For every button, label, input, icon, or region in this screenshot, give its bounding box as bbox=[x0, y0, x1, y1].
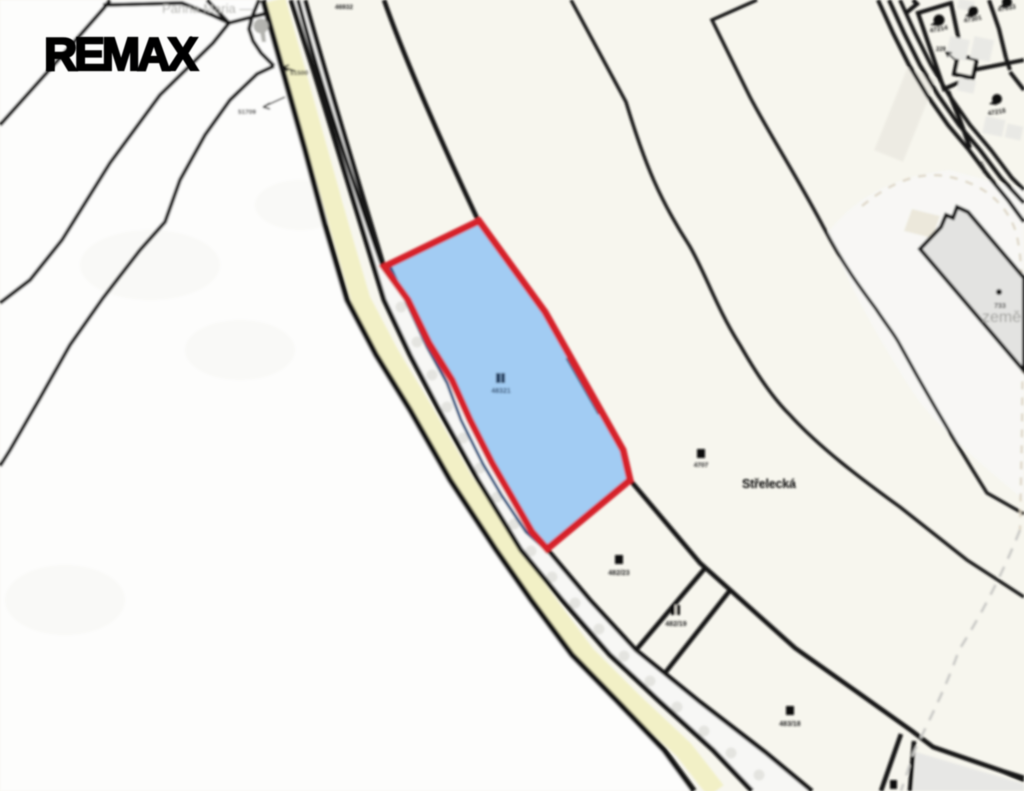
svg-text:51500: 51500 bbox=[290, 70, 308, 77]
svg-text:REMAX: REMAX bbox=[44, 28, 198, 80]
svg-text:46932: 46932 bbox=[335, 4, 353, 11]
svg-text:482/19: 482/19 bbox=[665, 621, 687, 628]
svg-text:země: země bbox=[982, 309, 1021, 326]
svg-text:4707: 4707 bbox=[694, 462, 709, 469]
svg-text:229: 229 bbox=[936, 47, 947, 53]
svg-text:48321: 48321 bbox=[491, 388, 511, 395]
svg-text:482/23: 482/23 bbox=[608, 570, 630, 577]
svg-text:51709: 51709 bbox=[238, 109, 256, 116]
svg-text:Střelecká: Střelecká bbox=[742, 477, 796, 491]
svg-text:Panna Maria —: Panna Maria — bbox=[162, 1, 252, 16]
svg-text:483/18: 483/18 bbox=[779, 721, 801, 728]
